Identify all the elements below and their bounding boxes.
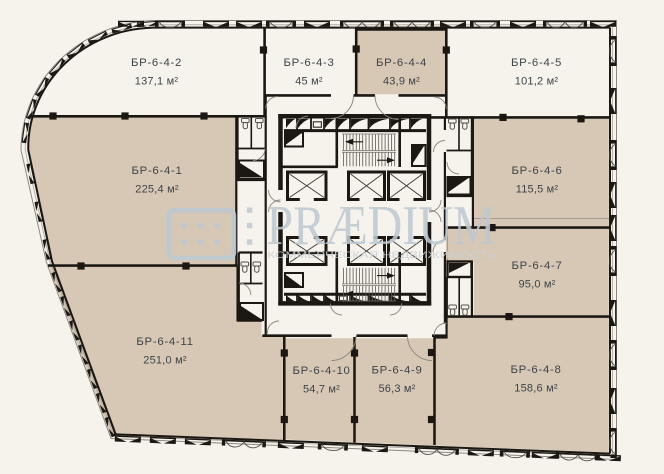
svg-text:PRÆDIUM: PRÆDIUM: [267, 195, 496, 257]
svg-text:БР-6-4-4: БР-6-4-4: [376, 57, 427, 69]
svg-text:КОММЕРЧЕСКАЯ НЕДВИЖИМОСТЬ: КОММЕРЧЕСКАЯ НЕДВИЖИМОСТЬ: [268, 250, 497, 261]
svg-text:45 м²: 45 м²: [295, 76, 323, 88]
svg-text:101,2 м²: 101,2 м²: [515, 76, 559, 88]
svg-text:54,7 м²: 54,7 м²: [303, 384, 340, 396]
svg-text:115,5 м²: 115,5 м²: [516, 184, 559, 196]
svg-text:БР-6-4-11: БР-6-4-11: [136, 336, 193, 348]
svg-text:БР-6-4-6: БР-6-4-6: [511, 165, 562, 177]
svg-text:56,3 м²: 56,3 м²: [378, 383, 415, 395]
svg-text:158,6 м²: 158,6 м²: [514, 383, 558, 395]
svg-text:БР-6-4-2: БР-6-4-2: [131, 57, 182, 69]
svg-text:95,0 м²: 95,0 м²: [518, 279, 555, 291]
svg-text:БР-6-4-8: БР-6-4-8: [510, 364, 561, 376]
svg-text:251,0 м²: 251,0 м²: [143, 355, 187, 367]
svg-text:225,4 м²: 225,4 м²: [135, 184, 179, 196]
svg-text:БР-6-4-1: БР-6-4-1: [131, 165, 182, 177]
svg-text:137,1 м²: 137,1 м²: [135, 76, 179, 88]
svg-text:БР-6-4-3: БР-6-4-3: [283, 57, 334, 69]
svg-text:43,9 м²: 43,9 м²: [383, 76, 420, 88]
svg-text:БР-6-4-5: БР-6-4-5: [511, 57, 562, 69]
svg-text:БР-6-4-10: БР-6-4-10: [292, 365, 350, 377]
svg-text:БР-6-4-9: БР-6-4-9: [371, 365, 422, 377]
svg-text:БР-6-4-7: БР-6-4-7: [511, 260, 562, 272]
